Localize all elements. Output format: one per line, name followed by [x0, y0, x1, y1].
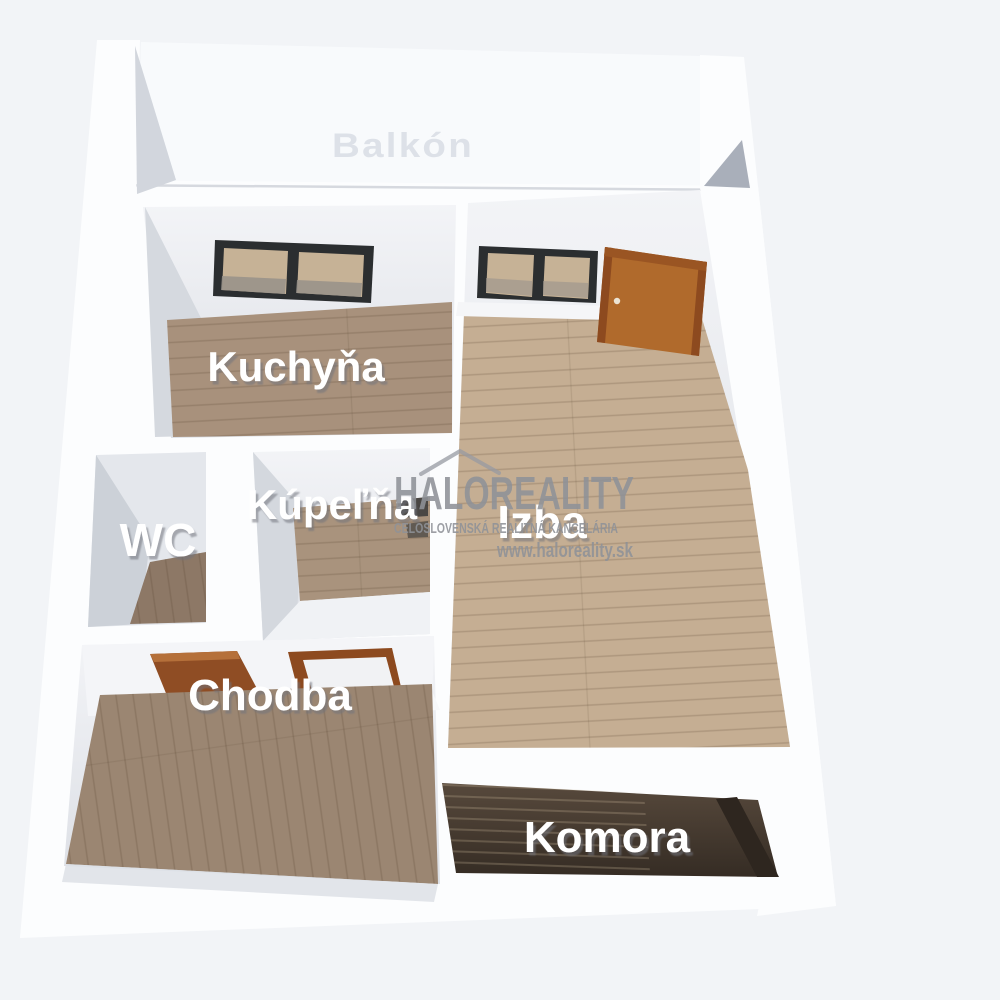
room-label-chodba: Chodba [188, 671, 352, 720]
watermark-subtitle: CELOSLOVENSKÁ REALITNÁ KANCELÁRIA [394, 520, 618, 537]
watermark-url: www.haloreality.sk [496, 540, 633, 562]
room-label-kuchyna: Kuchyňa [207, 343, 385, 390]
room-label-kupelna: Kúpeľňa [247, 481, 418, 528]
floor-plan-image: Balkón Kuchyňa Izba [0, 0, 1000, 1000]
balcony-floor [137, 42, 752, 194]
room-label-balkon: Balkón [332, 127, 474, 165]
room-chodba: Chodba [62, 636, 440, 902]
room-label-komora: Komora [524, 813, 691, 862]
watermark-brand: HALOREALITY [394, 467, 634, 519]
izba-door-handle [614, 298, 620, 304]
floor-plan-svg: Balkón Kuchyňa Izba [0, 0, 1000, 1000]
room-label-wc: WC [120, 514, 197, 566]
room-kuchyna: Kuchyňa [143, 205, 456, 438]
room-wc: WC [88, 452, 206, 627]
